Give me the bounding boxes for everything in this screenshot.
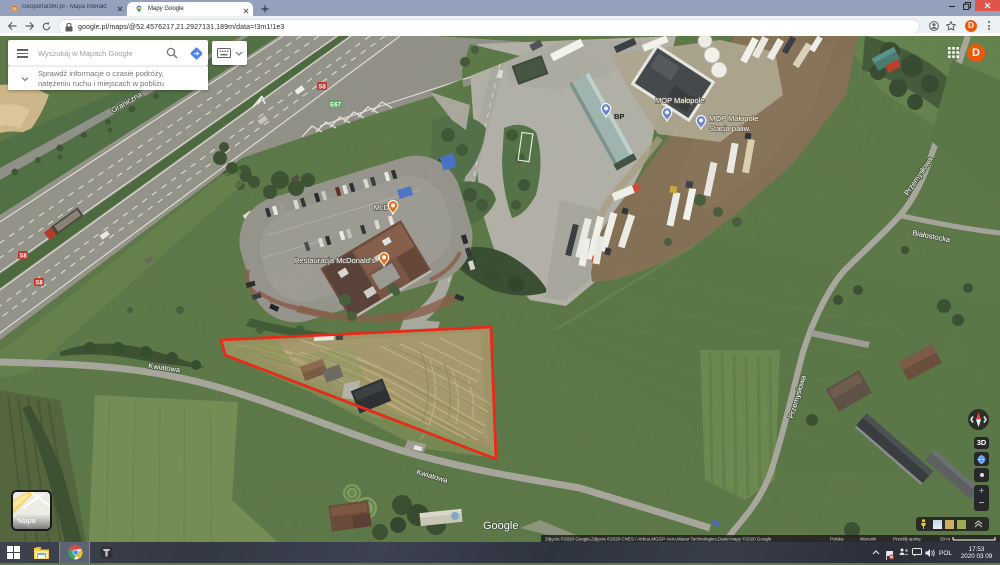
svg-text:Polska: Polska: [830, 537, 844, 542]
svg-text:Prześlij opinię: Prześlij opinię: [893, 537, 921, 542]
svg-text:Zdjęcia ©2020 Google,Zdjęcia ©: Zdjęcia ©2020 Google,Zdjęcia ©2020 CNES …: [545, 536, 772, 542]
svg-text:20 m: 20 m: [940, 537, 950, 542]
svg-text:Warunki: Warunki: [860, 537, 876, 542]
